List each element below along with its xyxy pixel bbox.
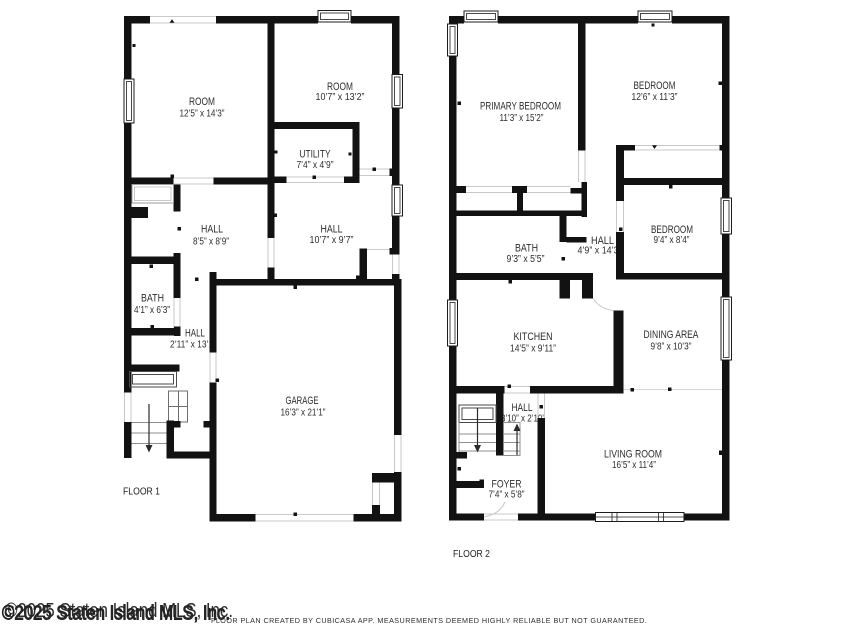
svg-text:KITCHEN: KITCHEN: [514, 331, 553, 343]
svg-text:PRIMARY BEDROOM: PRIMARY BEDROOM: [480, 101, 561, 113]
svg-text:9’8” x 10’3”: 9’8” x 10’3”: [651, 342, 692, 353]
svg-text:DINING AREA: DINING AREA: [644, 329, 700, 341]
svg-text:7’4” x 5’8”: 7’4” x 5’8”: [489, 490, 525, 501]
svg-text:BATH: BATH: [141, 293, 164, 305]
svg-text:12’5” x 14’3”: 12’5” x 14’3”: [180, 109, 225, 120]
svg-text:9’3” x 5’5”: 9’3” x 5’5”: [507, 254, 545, 265]
svg-text:UTILITY: UTILITY: [300, 149, 331, 161]
svg-text:HALL: HALL: [512, 402, 533, 414]
svg-text:9’4” x 8’4”: 9’4” x 8’4”: [654, 235, 690, 246]
svg-text:11’3” x 15’2”: 11’3” x 15’2”: [500, 113, 544, 124]
svg-text:16’5” x 11’4”: 16’5” x 11’4”: [612, 460, 656, 471]
svg-text:FLOOR 2: FLOOR 2: [453, 548, 490, 560]
svg-text:HALL: HALL: [201, 224, 223, 236]
svg-text:LIVING ROOM: LIVING ROOM: [604, 449, 662, 461]
svg-text:FLOOR PLAN CREATED BY CUBICASA: FLOOR PLAN CREATED BY CUBICASA APP. MEAS…: [211, 616, 647, 625]
svg-text:4’1” x 6’3”: 4’1” x 6’3”: [134, 305, 170, 316]
svg-text:12’6” x 11’3”: 12’6” x 11’3”: [632, 92, 678, 103]
svg-text:10’7” x 9’7”: 10’7” x 9’7”: [310, 235, 354, 246]
svg-text:BATH: BATH: [515, 243, 538, 255]
svg-text:ROOM: ROOM: [189, 96, 215, 108]
svg-text:7’4” x 4’9”: 7’4” x 4’9”: [297, 160, 334, 171]
svg-text:10’7” x 13’2”: 10’7” x 13’2”: [316, 92, 365, 103]
svg-text:16’3” x 21’1”: 16’3” x 21’1”: [281, 408, 326, 419]
svg-text:BEDROOM: BEDROOM: [634, 80, 676, 92]
svg-text:14’5” x 9’11”: 14’5” x 9’11”: [510, 344, 556, 355]
svg-text:HALL: HALL: [321, 224, 343, 236]
svg-text:GARAGE: GARAGE: [286, 395, 319, 407]
svg-text:4’9” x 14’3”: 4’9” x 14’3”: [578, 246, 622, 257]
svg-text:FLOOR 1: FLOOR 1: [123, 486, 160, 498]
svg-text:2’11” x 13’1”: 2’11” x 13’1”: [170, 340, 216, 351]
svg-text:©2025 Staten Island MLS, Inc.: ©2025 Staten Island MLS, Inc.: [2, 602, 230, 625]
svg-text:8’5” x 8’9”: 8’5” x 8’9”: [193, 237, 229, 248]
svg-text:HALL: HALL: [185, 328, 205, 340]
